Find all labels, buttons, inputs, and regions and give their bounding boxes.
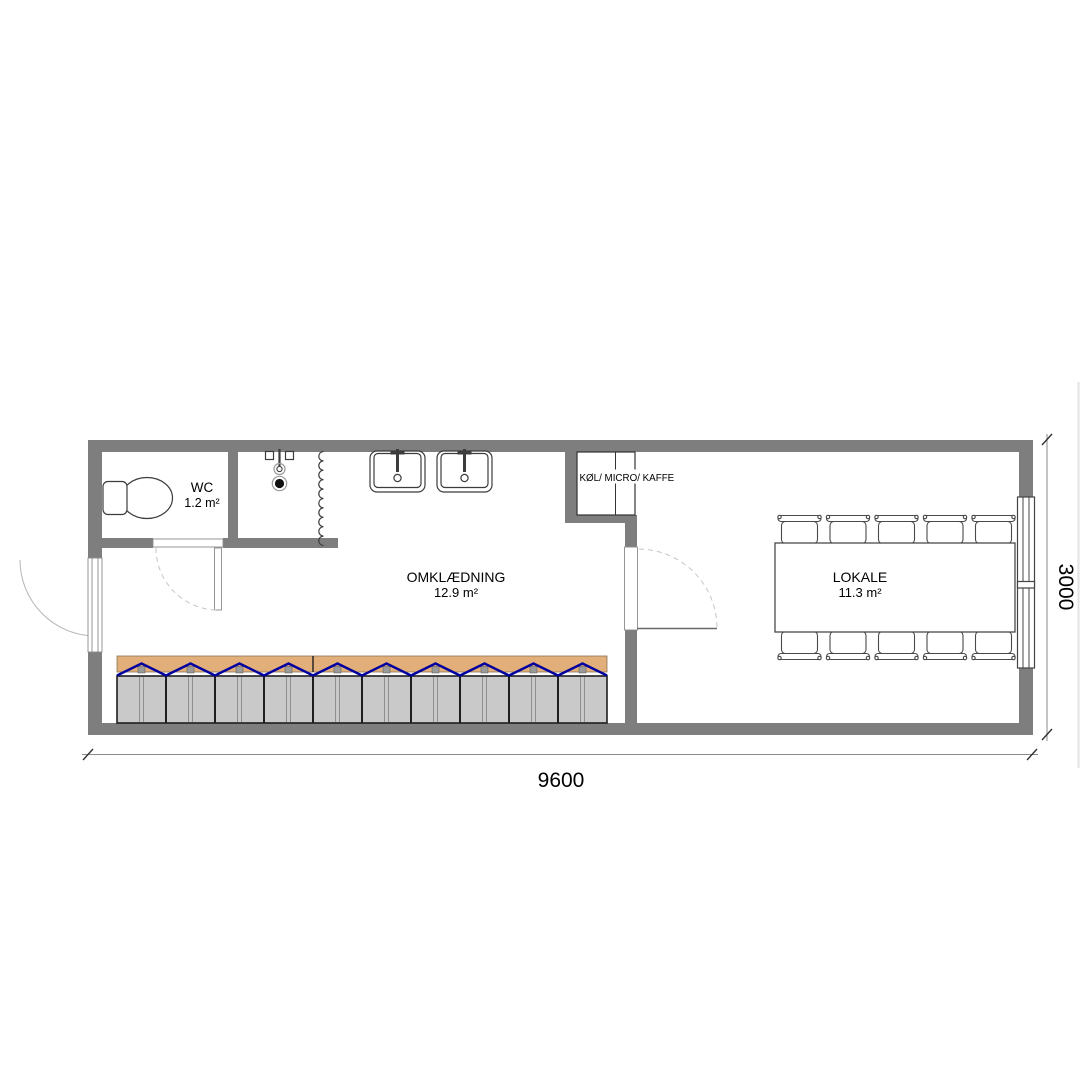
wc-door-leaf <box>215 548 222 610</box>
window-band <box>1018 497 1035 668</box>
floor-drain <box>275 479 284 488</box>
floor-plan-drawing: KØL/ MICRO/ KAFFE <box>0 0 1080 1080</box>
chair <box>875 515 918 543</box>
chair <box>923 632 966 660</box>
toilet <box>103 478 173 519</box>
chair <box>778 632 821 660</box>
wall-left-upper <box>88 440 102 558</box>
sink-2 <box>437 449 492 492</box>
dimension-width: 9600 <box>82 749 1038 792</box>
kitchenette-label: KØL/ MICRO/ KAFFE <box>580 473 675 484</box>
sink-1 <box>370 449 425 492</box>
chair <box>875 632 918 660</box>
shower-head <box>277 466 282 471</box>
wall-lokale-partition-upper <box>625 515 637 547</box>
wc-room-area: 1.2 m² <box>184 496 219 510</box>
wall-right-upper <box>1019 440 1033 497</box>
faucet-bar <box>391 452 405 455</box>
chair <box>826 632 869 660</box>
chair <box>778 515 821 543</box>
lokale-door-frame <box>625 547 638 630</box>
chair <box>826 515 869 543</box>
sink-drain <box>461 474 468 481</box>
entrance-door-leaf <box>92 558 98 652</box>
lokale-room-area: 11.3 m² <box>838 585 882 600</box>
wall-wc-partition <box>228 452 238 548</box>
locker-bench-unit <box>117 656 607 723</box>
shower-curtain <box>319 452 324 546</box>
wall-lokale-partition-lower <box>625 630 637 723</box>
omklaedning-room-name: OMKLÆDNING <box>407 569 506 585</box>
entrance-door-swing-arc <box>20 560 96 636</box>
chair <box>923 515 966 543</box>
sink-drain <box>394 474 401 481</box>
shower <box>266 449 324 546</box>
shower-valve-right <box>286 452 294 460</box>
chairs-top <box>778 515 1015 543</box>
doors <box>20 539 717 652</box>
wall-wc-bottom-right <box>223 538 338 548</box>
lokale-door-swing-arc <box>639 549 717 628</box>
omklaedning-room-area: 12.9 m² <box>434 585 479 600</box>
wc-door-frame <box>153 539 223 547</box>
faucet-bar <box>458 452 472 455</box>
wc-door-swing-arc <box>156 548 218 610</box>
floor-plan-page: KØL/ MICRO/ KAFFE <box>0 0 1080 1080</box>
wall-top <box>88 440 1032 452</box>
dimension-depth: 3000 <box>1042 434 1077 741</box>
window-mullion <box>1018 582 1035 589</box>
dim-width-value: 9600 <box>538 769 585 792</box>
wall-left-lower <box>88 652 102 735</box>
meeting-table <box>775 543 1015 632</box>
wall-niche-left <box>565 452 577 523</box>
chairs-bottom <box>778 632 1015 660</box>
toilet-tank <box>103 482 127 515</box>
chair <box>972 632 1015 660</box>
kitchenette-cabinet: KØL/ MICRO/ KAFFE <box>577 452 675 515</box>
chair <box>972 515 1015 543</box>
shower-valve-left <box>266 452 274 460</box>
lokale-room-name: LOKALE <box>833 569 887 585</box>
wall-right-lower <box>1019 668 1033 735</box>
toilet-bowl <box>122 478 173 519</box>
wc-room-name: WC <box>191 480 214 495</box>
wall-wc-bottom-left <box>102 538 153 548</box>
dim-depth-value: 3000 <box>1054 564 1077 611</box>
wall-bottom <box>88 723 1032 735</box>
